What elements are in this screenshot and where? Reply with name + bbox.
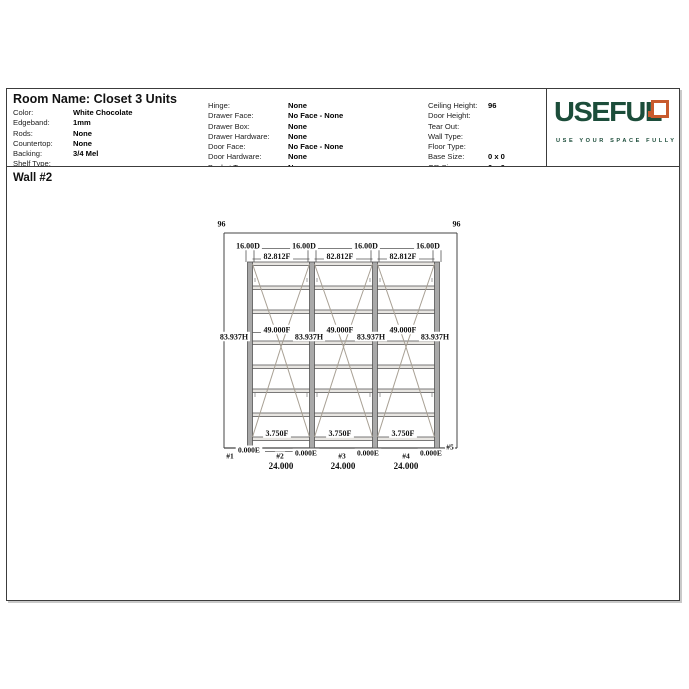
field-label: Drawer Hardware:	[208, 132, 288, 142]
field-label: Tear Out:	[428, 122, 488, 132]
field-label: Countertop:	[13, 139, 73, 149]
header-field-row: Floor Type:	[428, 142, 505, 152]
header-field-row: Door Height:	[428, 111, 505, 121]
header-field-row: Backing:3/4 Mel	[13, 149, 133, 159]
header-field-row: Drawer Hardware:None	[208, 132, 343, 142]
field-label: Drawer Face:	[208, 111, 288, 121]
header-field-row: Base Size:0 x 0	[428, 152, 505, 162]
brand-logo: USEFUL	[554, 97, 661, 128]
header-field-row: Drawer Box:None	[208, 122, 343, 132]
header-field-row: Color:White Chocolate	[13, 108, 133, 118]
field-label: Drawer Box:	[208, 122, 288, 132]
header-field-row: Edgeband:1mm	[13, 118, 133, 128]
field-value: 96	[488, 101, 496, 110]
field-label: Door Height:	[428, 111, 488, 121]
header-field-row: Wall Type:	[428, 132, 505, 142]
field-label: Door Hardware:	[208, 152, 288, 162]
header-box: Room Name: Closet 3 Units Color:White Ch…	[6, 88, 680, 168]
field-value: 1mm	[73, 118, 91, 127]
field-value: No Face - None	[288, 142, 343, 151]
header-column-materials: Color:White ChocolateEdgeband:1mmRods:No…	[13, 108, 133, 170]
header-field-row: Drawer Face:No Face - None	[208, 111, 343, 121]
header-column-dimensions: Ceiling Height:96Door Height:Tear Out:Wa…	[428, 101, 505, 173]
header-field-row: Door Hardware:None	[208, 152, 343, 162]
header-field-row: Tear Out:	[428, 122, 505, 132]
field-label: Backing:	[13, 149, 73, 159]
brand-tagline: USE YOUR SPACE FULLY	[556, 138, 677, 144]
field-value: None	[288, 132, 307, 141]
field-value: 0 x 0	[488, 152, 505, 161]
field-value: None	[73, 139, 92, 148]
field-label: Color:	[13, 108, 73, 118]
logo-cell: USEFUL USE YOUR SPACE FULLY	[546, 89, 680, 167]
header-field-row: Countertop:None	[13, 139, 133, 149]
field-value: 3/4 Mel	[73, 149, 98, 158]
field-label: Floor Type:	[428, 142, 488, 152]
field-label: Door Face:	[208, 142, 288, 152]
field-value: None	[288, 122, 307, 131]
field-label: Wall Type:	[428, 132, 488, 142]
field-value: None	[288, 101, 307, 110]
field-value: White Chocolate	[73, 108, 133, 117]
header-field-row: Door Face:No Face - None	[208, 142, 343, 152]
header-field-row: Hinge:None	[208, 101, 343, 111]
header-field-row: Ceiling Height:96	[428, 101, 505, 111]
field-value: None	[288, 152, 307, 161]
report-page: Room Name: Closet 3 Units Color:White Ch…	[0, 0, 689, 689]
header-column-hardware: Hinge:NoneDrawer Face:No Face - NoneDraw…	[208, 101, 343, 173]
wall-title: Wall #2	[13, 172, 52, 184]
logo-square-notch-icon	[648, 111, 654, 117]
header-field-row: Rods:None	[13, 129, 133, 139]
field-label: Base Size:	[428, 152, 488, 162]
field-value: None	[73, 129, 92, 138]
room-title: Room Name: Closet 3 Units	[13, 92, 177, 106]
field-value: No Face - None	[288, 111, 343, 120]
field-label: Rods:	[13, 129, 73, 139]
field-label: Hinge:	[208, 101, 288, 111]
field-label: Ceiling Height:	[428, 101, 488, 111]
wall-drawing-box: Wall #2	[6, 166, 680, 601]
field-label: Edgeband:	[13, 118, 73, 128]
